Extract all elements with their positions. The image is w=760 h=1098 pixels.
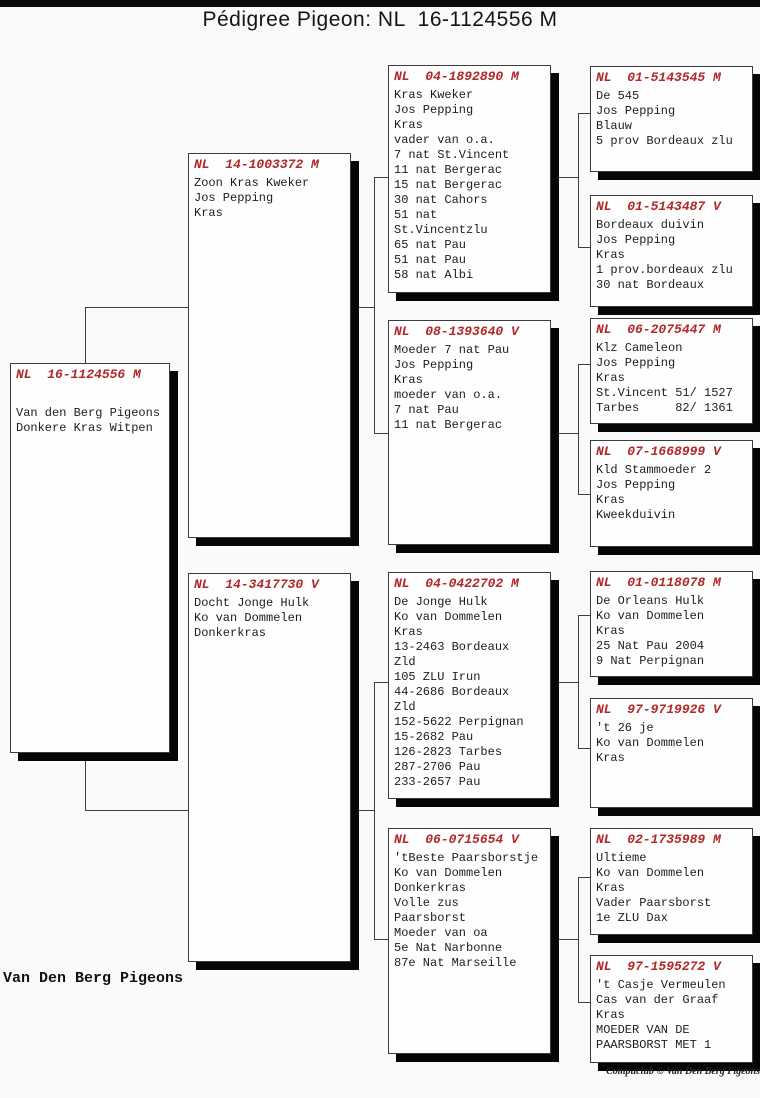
connector-line (552, 433, 578, 434)
ring-number-header: NL 01-5143487 V (596, 199, 747, 214)
connector-line (374, 682, 389, 683)
pedigree-box-dam: NL 14-3417730 V Docht Jonge HulkKo van D… (188, 573, 351, 962)
pigeon-text-line: Tarbes 82/ 1361 (596, 401, 747, 416)
pedigree-box-dam-sire-dam: NL 97-9719926 V 't 26 jeKo van DommelenK… (590, 698, 753, 808)
pigeon-details: 'tBeste PaarsborstjeKo van DommelenDonke… (394, 851, 545, 971)
pigeon-text-line: Vader Paarsborst (596, 896, 747, 911)
pigeon-text-line: Jos Pepping (596, 478, 747, 493)
pigeon-details: Klz CameleonJos PeppingKrasSt.Vincent 51… (596, 341, 747, 416)
pigeon-text-line: 'tBeste Paarsborstje (394, 851, 545, 866)
pigeon-text-line: Jos Pepping (194, 191, 345, 206)
pigeon-text-line: 9 Nat Perpignan (596, 654, 747, 669)
pigeon-text-line: Zld (394, 655, 545, 670)
ring-number-header: NL 97-9719926 V (596, 702, 747, 717)
pigeon-details: Zoon Kras KwekerJos PeppingKras (194, 176, 345, 221)
connector-line (552, 177, 578, 178)
page-title: Pédigree Pigeon: NL 16-1124556 M (0, 8, 760, 32)
connector-line (374, 177, 375, 434)
pigeon-text-line: Jos Pepping (596, 356, 747, 371)
pigeon-text-line: Moeder 7 nat Pau (394, 343, 545, 358)
pedigree-box-sire-dam-sire: NL 06-2075447 M Klz CameleonJos PeppingK… (590, 318, 753, 424)
pedigree-box-sire-sire: NL 04-1892890 M Kras KwekerJos PeppingKr… (388, 65, 551, 293)
pigeon-text-line: De Orleans Hulk (596, 594, 747, 609)
pigeon-text-line: Ko van Dommelen (394, 866, 545, 881)
pigeon-details: Docht Jonge HulkKo van DommelenDonkerkra… (194, 596, 345, 641)
pigeon-text-line: Zoon Kras Kweker (194, 176, 345, 191)
pigeon-text-line: Moeder van oa (394, 926, 545, 941)
pigeon-text-line: Kras (596, 493, 747, 508)
connector-line (85, 810, 189, 811)
pigeon-text-line: Kld Stammoeder 2 (596, 463, 747, 478)
pigeon-text-line: St.Vincentzlu (394, 223, 545, 238)
pigeon-text-line: Jos Pepping (596, 233, 747, 248)
connector-line (374, 177, 389, 178)
pedigree-box-dam-sire: NL 04-0422702 M De Jonge HulkKo van Domm… (388, 572, 551, 799)
pigeon-text-line: 11 nat Bergerac (394, 418, 545, 433)
pedigree-document: Pédigree Pigeon: NL 16-1124556 M NL 16-1… (0, 0, 760, 1098)
pigeon-text-line: Docht Jonge Hulk (194, 596, 345, 611)
connector-line (374, 433, 389, 434)
pedigree-box-dam-sire-sire: NL 01-0118078 M De Orleans HulkKo van Do… (590, 571, 753, 677)
pedigree-box-dam-dam-dam: NL 97-1595272 V 't Casje VermeulenCas va… (590, 955, 753, 1063)
pedigree-box-sire: NL 14-1003372 M Zoon Kras KwekerJos Pepp… (188, 153, 351, 538)
connector-line (85, 752, 86, 811)
pigeon-text-line: Van den Berg Pigeons (16, 406, 164, 421)
pigeon-text-line: PAARSBORST MET 1 (596, 1038, 747, 1053)
pigeon-text-line: Donkere Kras Witpen (16, 421, 164, 436)
pigeon-text-line: Cas van der Graaf (596, 993, 747, 1008)
ring-number-header: NL 14-1003372 M (194, 157, 345, 172)
pigeon-text-line: Kweekduivin (596, 508, 747, 523)
pigeon-text-line: 15-2682 Pau (394, 730, 545, 745)
pedigree-box-sire-sire-dam: NL 01-5143487 V Bordeaux duivinJos Peppi… (590, 195, 753, 307)
pigeon-text-line: Jos Pepping (394, 358, 545, 373)
pigeon-text-line: 65 nat Pau (394, 238, 545, 253)
pedigree-box-dam-dam-sire: NL 02-1735989 M UltiemeKo van DommelenKr… (590, 828, 753, 935)
pigeon-text-line: 7 nat Pau (394, 403, 545, 418)
pigeon-details: Kras KwekerJos PeppingKrasvader van o.a.… (394, 88, 545, 283)
pigeon-text-line: 44-2686 Bordeaux (394, 685, 545, 700)
pigeon-text-line: 87e Nat Marseille (394, 956, 545, 971)
connector-line (578, 877, 579, 1003)
connector-line (85, 307, 189, 308)
pigeon-text-line: 't 26 je (596, 721, 747, 736)
pigeon-text-line: Blauw (596, 119, 747, 134)
pigeon-text-line: 1e ZLU Dax (596, 911, 747, 926)
pigeon-text-line: Ko van Dommelen (194, 611, 345, 626)
ring-number-header: NL 01-5143545 M (596, 70, 747, 85)
pigeon-text-line: 287-2706 Pau (394, 760, 545, 775)
connector-line (85, 307, 86, 364)
pigeon-text-line: 1 prov.bordeaux zlu (596, 263, 747, 278)
pigeon-details: De Orleans HulkKo van DommelenKras25 Nat… (596, 594, 747, 669)
pigeon-details: Kld Stammoeder 2Jos PeppingKrasKweekduiv… (596, 463, 747, 523)
pedigree-box-sire-dam-dam: NL 07-1668999 V Kld Stammoeder 2Jos Pepp… (590, 440, 753, 547)
pigeon-text-line: vader van o.a. (394, 133, 545, 148)
pigeon-text-line: Kras (596, 881, 747, 896)
pigeon-text-line: St.Vincent 51/ 1527 (596, 386, 747, 401)
pigeon-text-line: De Jonge Hulk (394, 595, 545, 610)
pigeon-text-line: Kras (394, 373, 545, 388)
pigeon-text-line: 't Casje Vermeulen (596, 978, 747, 993)
pigeon-text-line: Zld (394, 700, 545, 715)
ring-number-header: NL 04-1892890 M (394, 69, 545, 84)
pigeon-text-line: Kras (596, 371, 747, 386)
pigeon-text-line: moeder van o.a. (394, 388, 545, 403)
pigeon-text-line: 7 nat St.Vincent (394, 148, 545, 163)
pigeon-text-line: Kras (596, 248, 747, 263)
compuclub-credit: Compuclub © Van Den Berg Pigeons (606, 1066, 760, 1077)
connector-line (578, 364, 579, 495)
pigeon-text-line: Ko van Dommelen (596, 609, 747, 624)
pigeon-text-line: 233-2657 Pau (394, 775, 545, 790)
ring-number-header: NL 14-3417730 V (194, 577, 345, 592)
connector-line (352, 810, 375, 811)
pigeon-text-line: 5 prov Bordeaux zlu (596, 134, 747, 149)
pigeon-text-line: Donkerkras (394, 881, 545, 896)
pedigree-box-sire-sire-sire: NL 01-5143545 M De 545Jos PeppingBlauw5 … (590, 66, 753, 172)
scan-top-edge-bar (0, 0, 760, 7)
pigeon-text-line: MOEDER VAN DE (596, 1023, 747, 1038)
pigeon-text-line: Ko van Dommelen (596, 736, 747, 751)
pigeon-details: Moeder 7 nat PauJos PeppingKrasmoeder va… (394, 343, 545, 433)
pigeon-details: Van den Berg PigeonsDonkere Kras Witpen (16, 406, 164, 436)
pigeon-text-line: 51 nat (394, 208, 545, 223)
pigeon-text-line: 51 nat Pau (394, 253, 545, 268)
ring-number-header: NL 02-1735989 M (596, 832, 747, 847)
pigeon-details: 't Casje VermeulenCas van der GraafKrasM… (596, 978, 747, 1053)
pigeon-text-line: 13-2463 Bordeaux (394, 640, 545, 655)
connector-line (352, 307, 375, 308)
pigeon-text-line: 58 nat Albi (394, 268, 545, 283)
ring-number-header: NL 04-0422702 M (394, 576, 545, 591)
ring-number-header: NL 01-0118078 M (596, 575, 747, 590)
pigeon-text-line: Paarsborst (394, 911, 545, 926)
pigeon-text-line: 126-2823 Tarbes (394, 745, 545, 760)
pedigree-box-sire-dam: NL 08-1393640 V Moeder 7 nat PauJos Pepp… (388, 320, 551, 545)
pigeon-text-line: 30 nat Cahors (394, 193, 545, 208)
pigeon-text-line: Ko van Dommelen (596, 866, 747, 881)
pigeon-text-line: 105 ZLU Irun (394, 670, 545, 685)
connector-line (374, 939, 389, 940)
pigeon-text-line: Jos Pepping (596, 104, 747, 119)
pigeon-text-line: 152-5622 Perpignan (394, 715, 545, 730)
ring-number-header: NL 16-1124556 M (16, 367, 164, 382)
pigeon-text-line: 11 nat Bergerac (394, 163, 545, 178)
pigeon-details: De 545Jos PeppingBlauw5 prov Bordeaux zl… (596, 89, 747, 149)
pedigree-box-dam-dam: NL 06-0715654 V 'tBeste PaarsborstjeKo v… (388, 828, 551, 1054)
connector-line (374, 682, 375, 940)
pigeon-details: Bordeaux duivinJos PeppingKras1 prov.bor… (596, 218, 747, 293)
pigeon-text-line: Donkerkras (194, 626, 345, 641)
ring-number-header: NL 97-1595272 V (596, 959, 747, 974)
pigeon-text-line: Kras (394, 118, 545, 133)
connector-line (552, 682, 578, 683)
pigeon-text-line: 15 nat Bergerac (394, 178, 545, 193)
pigeon-text-line: Jos Pepping (394, 103, 545, 118)
pigeon-text-line: 5e Nat Narbonne (394, 941, 545, 956)
pigeon-text-line: Bordeaux duivin (596, 218, 747, 233)
ring-number-header: NL 08-1393640 V (394, 324, 545, 339)
pigeon-text-line: Ultieme (596, 851, 747, 866)
pigeon-text-line: Ko van Dommelen (394, 610, 545, 625)
pigeon-text-line: De 545 (596, 89, 747, 104)
ring-number-header: NL 06-0715654 V (394, 832, 545, 847)
pigeon-text-line: Kras Kweker (394, 88, 545, 103)
pigeon-details: 't 26 jeKo van DommelenKras (596, 721, 747, 766)
connector-line (552, 939, 578, 940)
ring-number-header: NL 07-1668999 V (596, 444, 747, 459)
pigeon-details: De Jonge HulkKo van DommelenKras13-2463 … (394, 595, 545, 790)
pigeon-text-line: Kras (596, 624, 747, 639)
pigeon-text-line: 30 nat Bordeaux (596, 278, 747, 293)
pigeon-text-line: Kras (394, 625, 545, 640)
pigeon-text-line: Volle zus (394, 896, 545, 911)
connector-line (578, 615, 579, 749)
pigeon-text-line: Kras (596, 1008, 747, 1023)
loft-name: Van Den Berg Pigeons (3, 970, 183, 987)
pedigree-box-subject: NL 16-1124556 M Van den Berg PigeonsDonk… (10, 363, 170, 753)
ring-number-header: NL 06-2075447 M (596, 322, 747, 337)
pigeon-text-line: Klz Cameleon (596, 341, 747, 356)
pigeon-text-line: Kras (596, 751, 747, 766)
pigeon-text-line: 25 Nat Pau 2004 (596, 639, 747, 654)
connector-line (578, 113, 579, 248)
pigeon-details: UltiemeKo van DommelenKrasVader Paarsbor… (596, 851, 747, 926)
pigeon-text-line: Kras (194, 206, 345, 221)
